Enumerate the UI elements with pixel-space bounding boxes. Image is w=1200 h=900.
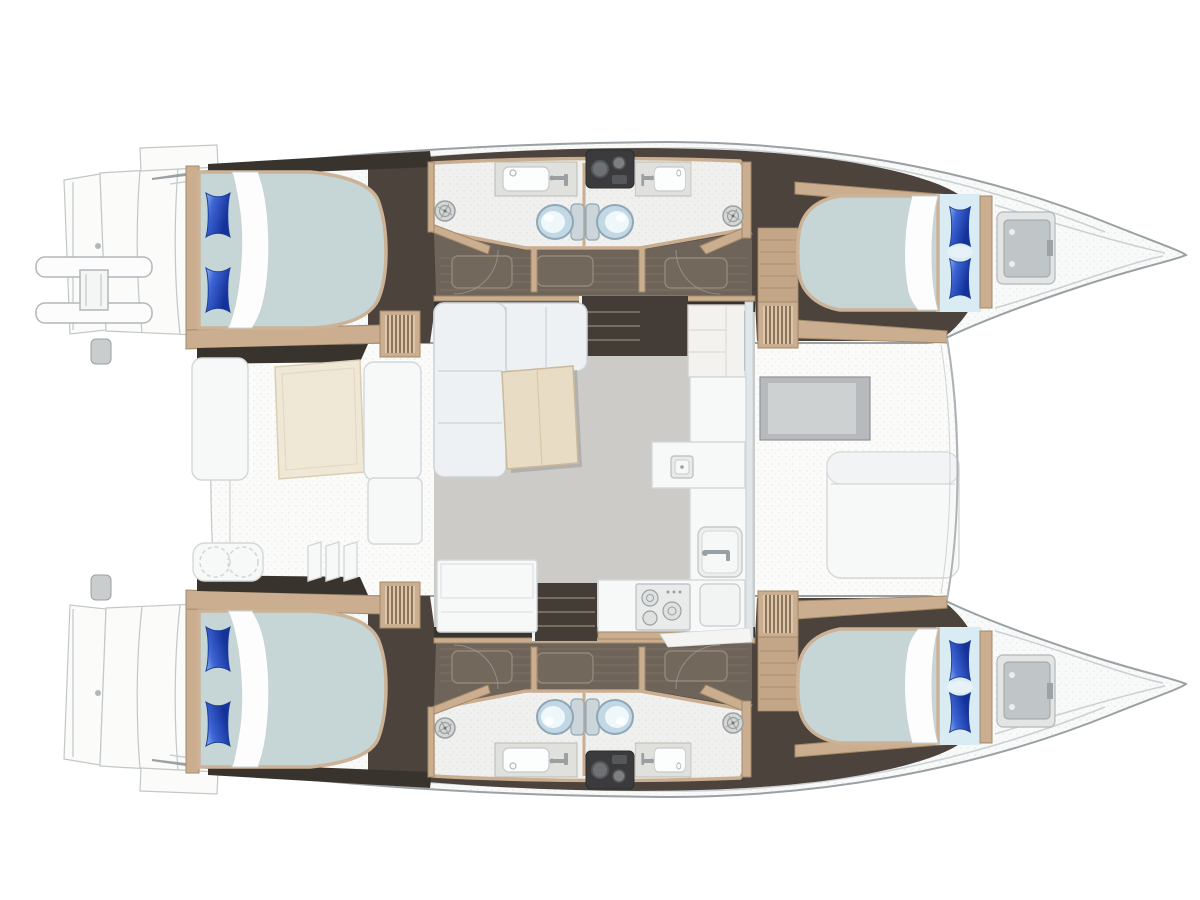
galley-stove — [636, 584, 690, 630]
floor-plan-canvas — [0, 0, 1200, 900]
galley-basin — [700, 584, 740, 626]
galley-counter-top-arm — [652, 442, 745, 488]
burner — [642, 590, 658, 606]
galley-sink — [698, 527, 742, 577]
nav-cabinet — [437, 560, 537, 632]
cockpit-bench-starboard — [364, 362, 421, 480]
ladder-rail — [80, 270, 108, 310]
salon-table — [502, 366, 582, 473]
stairs-to-starboard-hull — [532, 583, 597, 641]
burner — [643, 611, 657, 625]
sofa-left-arm — [434, 303, 506, 477]
helm-seat — [193, 543, 263, 581]
cockpit-table — [275, 360, 364, 479]
cockpit-step — [308, 542, 321, 581]
catamaran-floor-plan — [0, 0, 1200, 900]
cockpit-locker — [368, 478, 422, 544]
cockpit-step — [326, 542, 339, 581]
cockpit-step — [344, 542, 357, 581]
sunpad-backrest — [827, 452, 959, 484]
refrigerator — [688, 305, 750, 377]
forward-lounge — [827, 452, 959, 578]
cockpit-bench-port — [192, 358, 248, 480]
stairs-to-port-hull — [579, 296, 688, 356]
burner — [663, 602, 681, 620]
